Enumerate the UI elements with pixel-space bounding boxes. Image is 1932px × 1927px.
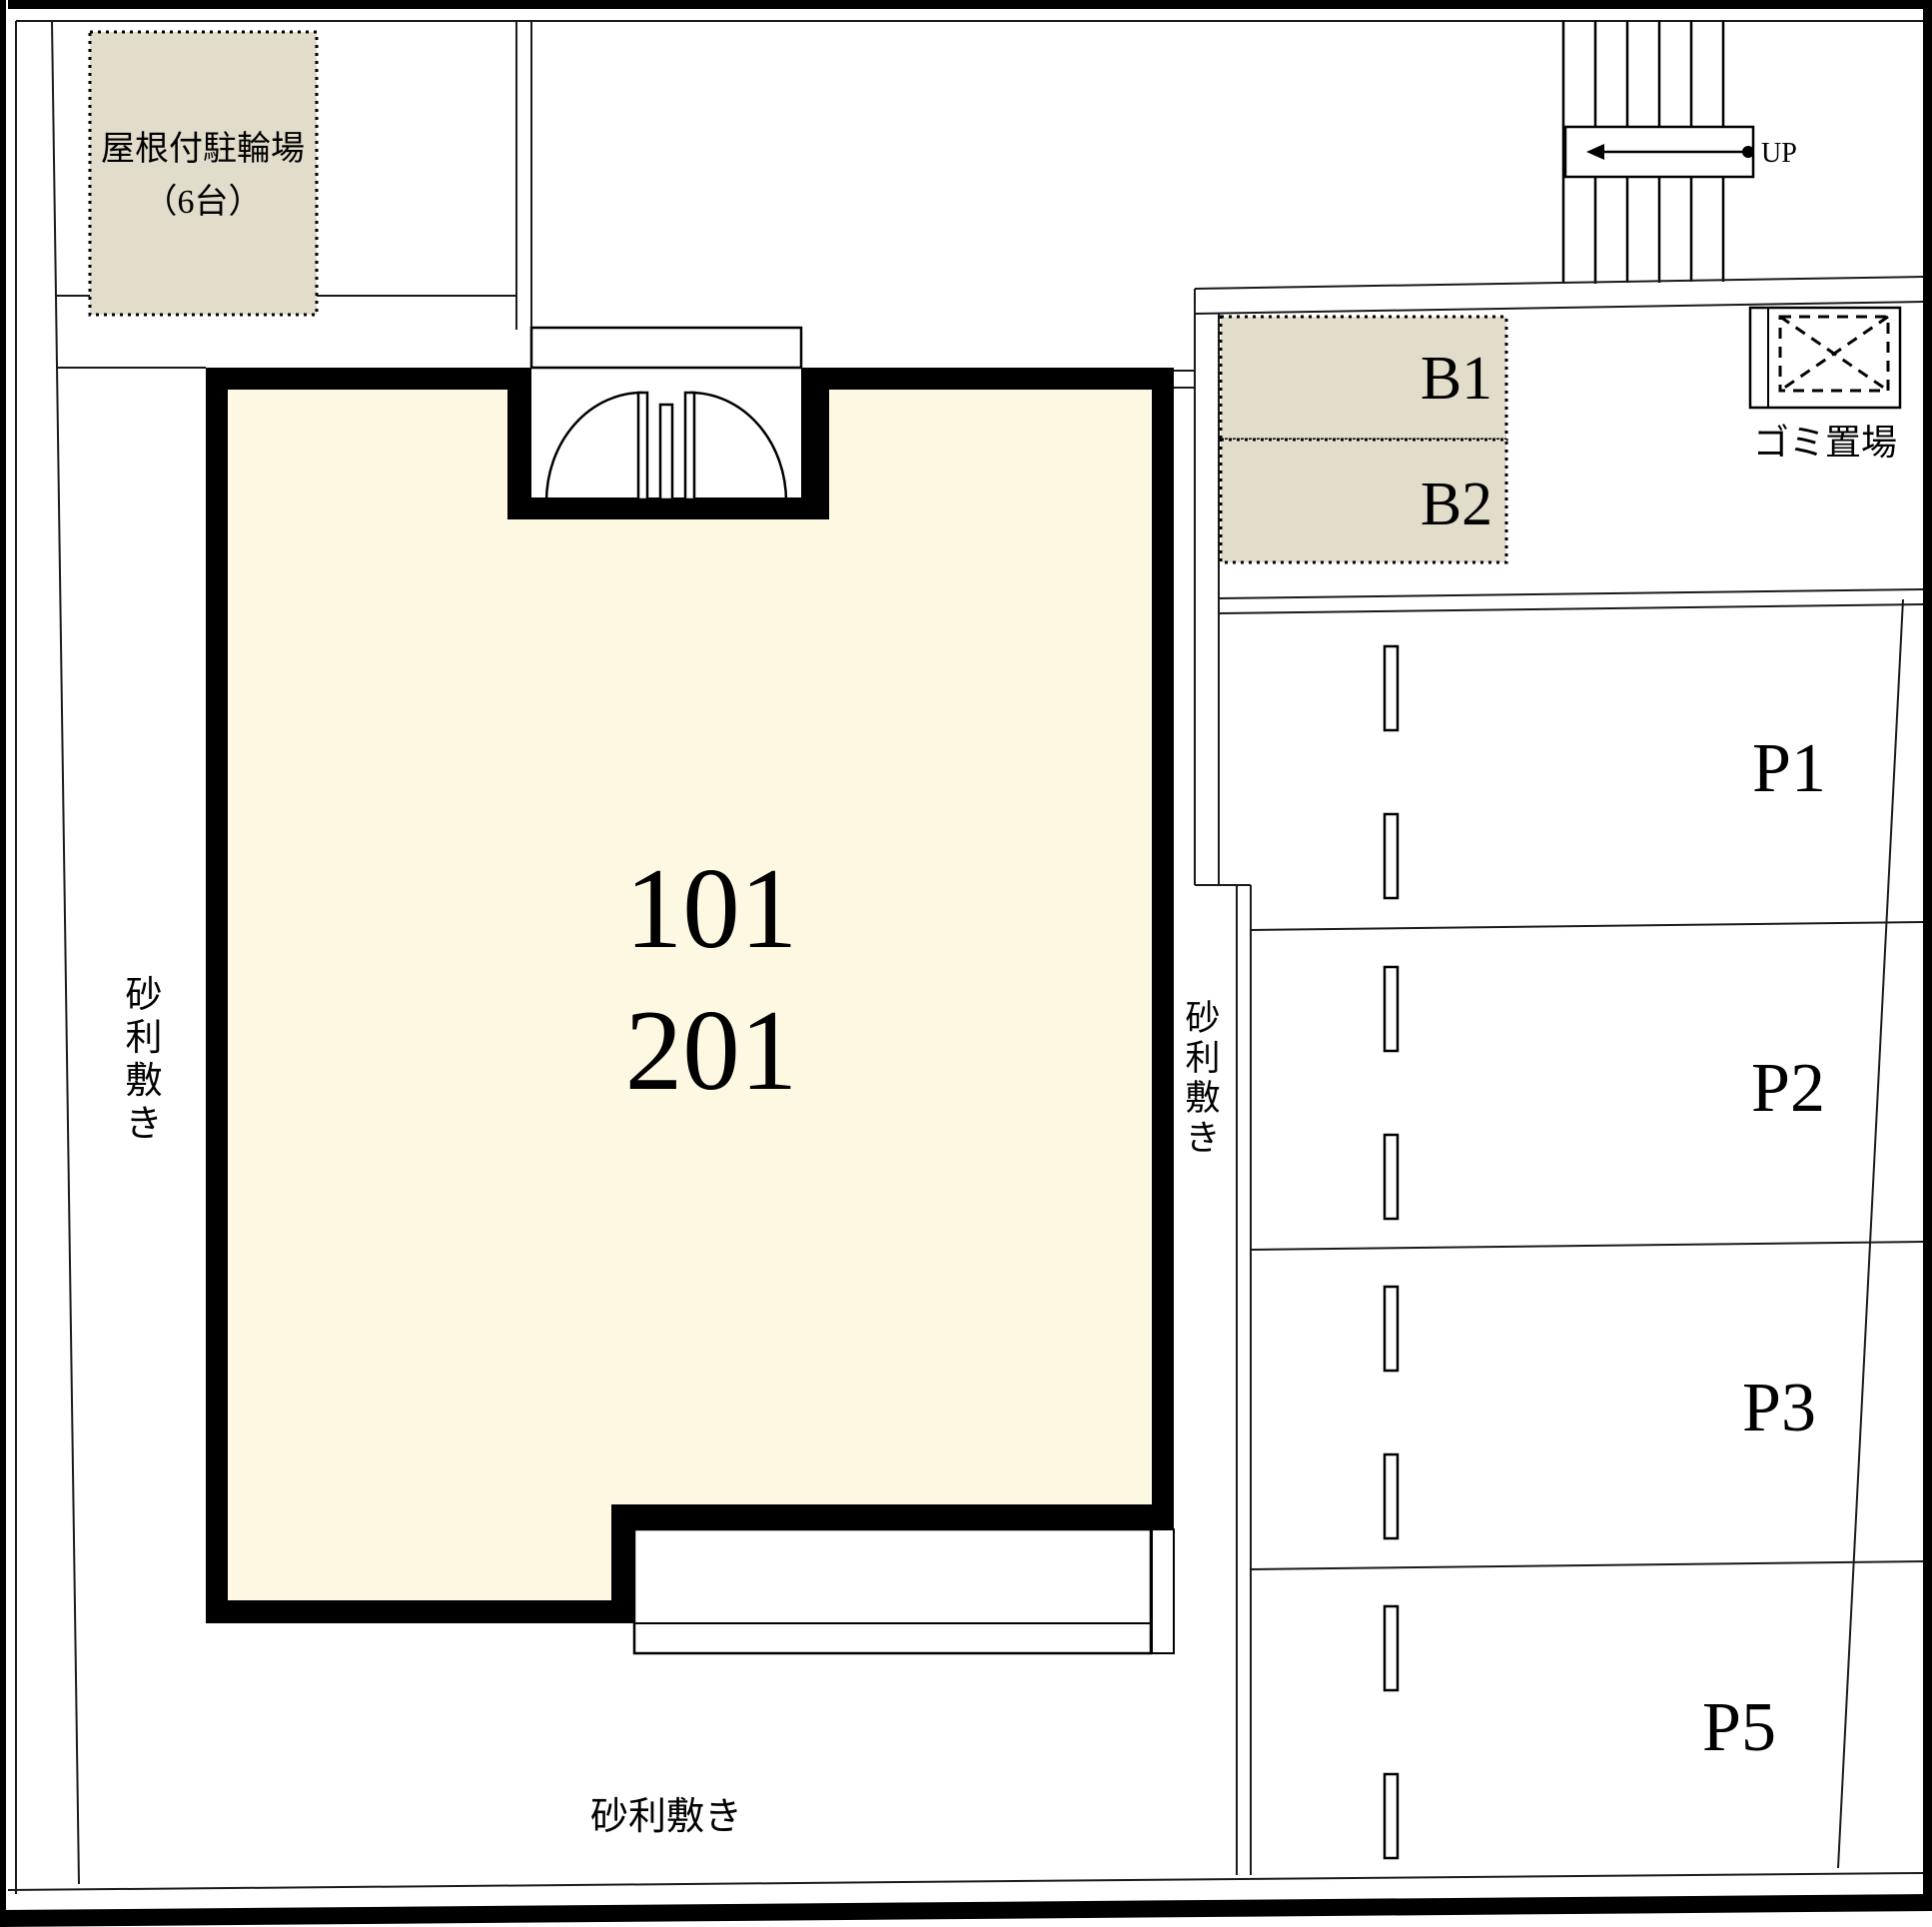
frame-left [0, 0, 6, 1927]
wall-entrance-bottom [507, 497, 829, 519]
stairs-up-label: UP [1761, 138, 1797, 169]
wheel-stop-p3-b [1385, 1454, 1398, 1538]
stalls-top-line-2 [1219, 604, 1923, 613]
gravel-label-bottom: 砂利敷き [590, 1796, 742, 1838]
bike-stall-b1-label: B1 [1421, 345, 1492, 413]
bicycle-parking-label-line1: 屋根付駐輪場 [101, 130, 305, 168]
site-line-left-inner [52, 21, 79, 1884]
stalls-top-line-1 [1219, 589, 1923, 598]
wheel-stop-p3-a [1385, 1287, 1398, 1371]
wall-entrance-left [507, 368, 531, 519]
parking-p2-label: P2 [1751, 1050, 1825, 1127]
bike-stall-area: B1 B2 [1221, 317, 1506, 562]
veranda-strip [634, 1529, 1151, 1653]
entrance-porch [531, 328, 801, 368]
wall-bottom-left [206, 1600, 634, 1623]
veranda [634, 1529, 1174, 1653]
wall-top-right [829, 368, 1174, 390]
covered-bicycle-parking: 屋根付駐輪場 （6台） [90, 32, 317, 315]
unit-101-label: 101 [625, 845, 798, 972]
site-plan-drawing: 屋根付駐輪場 （6台） UP [0, 0, 1932, 1927]
parking-p5-label: P5 [1702, 1689, 1776, 1766]
site-plan-page: 屋根付駐輪場 （6台） UP [0, 0, 1932, 1927]
garbage-area: ゴミ置場 [1750, 308, 1900, 463]
site-line-bottom [8, 1873, 1923, 1890]
wheel-stop-p5-b [1385, 1774, 1398, 1858]
gravel-label-right: 砂利敷き [1185, 999, 1220, 1158]
frame-top [8, 0, 1932, 9]
bicycle-parking-box [90, 32, 317, 315]
staircase: UP [1563, 21, 1797, 284]
stall-divider-p2-p3 [1251, 1242, 1923, 1250]
unit-201-label: 201 [625, 987, 798, 1114]
parking-p3-label: P3 [1742, 1370, 1816, 1446]
bike-stall-b2-label: B2 [1421, 471, 1492, 538]
wall-left [206, 368, 228, 1623]
garbage-label: ゴミ置場 [1753, 423, 1897, 463]
garbage-enclosure [1750, 308, 1900, 408]
frame-bottom [0, 1894, 1932, 1927]
wheel-stop-p1-a [1385, 646, 1398, 730]
wall-bottom-right [611, 1504, 1152, 1529]
wall-entrance-right [801, 368, 829, 519]
parking-right-inner-line [1838, 599, 1903, 1868]
stall-divider-p1-p2 [1251, 922, 1923, 930]
door-center-post [660, 405, 672, 499]
gravel-label-left: 砂利敷き [126, 975, 163, 1145]
parking-wheel-stops [1385, 646, 1398, 1858]
stall-divider-p3-p5 [1251, 1561, 1923, 1569]
bicycle-parking-label-line2: （6台） [144, 183, 263, 221]
stair-arrow-origin-dot [1742, 146, 1754, 158]
wall-right [1152, 368, 1174, 1529]
building: 101 201 [206, 328, 1174, 1653]
court-top-line-1 [1195, 277, 1923, 289]
wheel-stop-p1-b [1385, 814, 1398, 898]
parking-stall-labels: P1 P2 P3 P5 [1702, 730, 1826, 1766]
parking-p1-label: P1 [1752, 730, 1826, 807]
door-leaf-left [638, 393, 647, 499]
door-leaf-right [685, 393, 694, 499]
frame-right [1923, 0, 1932, 1910]
wheel-stop-p2-a [1385, 967, 1398, 1051]
veranda-right-end [1152, 1529, 1174, 1653]
wheel-stop-p5-a [1385, 1606, 1398, 1690]
wall-top-left [206, 368, 507, 390]
wheel-stop-p2-b [1385, 1135, 1398, 1219]
